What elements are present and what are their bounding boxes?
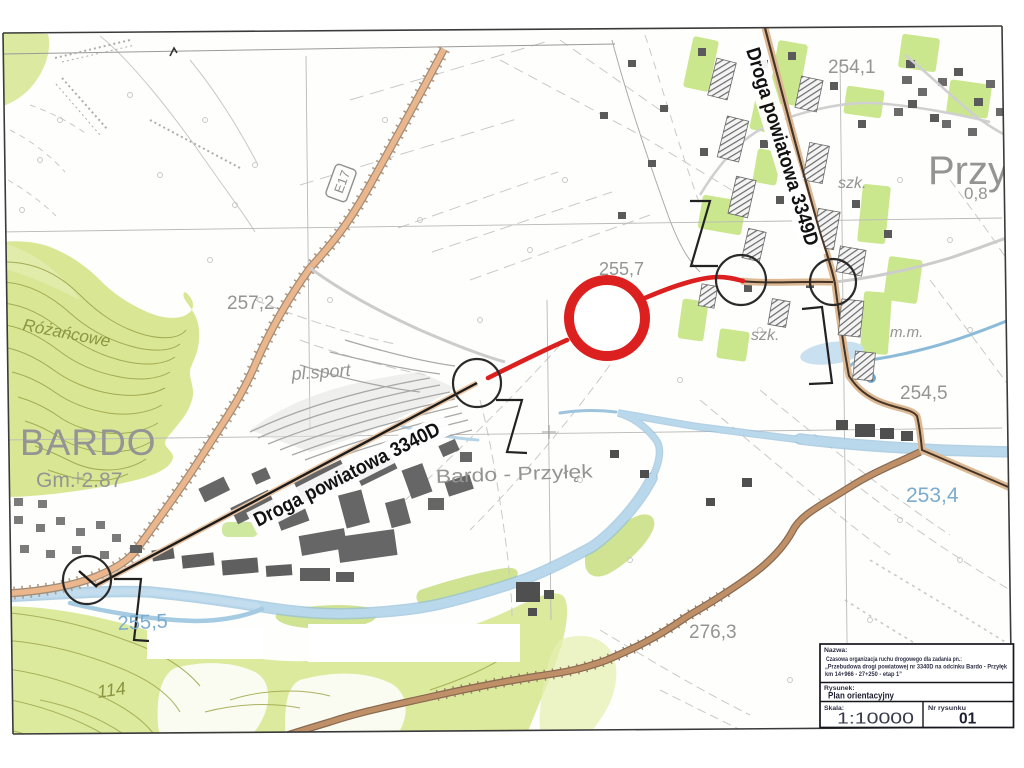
svg-text:0,8: 0,8	[964, 184, 988, 203]
svg-text:254,5: 254,5	[900, 383, 948, 404]
svg-text:szk.: szk.	[751, 327, 779, 344]
svg-text:Plan orientacyjny: Plan orientacyjny	[828, 691, 895, 701]
svg-text:BARDO: BARDO	[20, 422, 157, 463]
svg-text:114: 114	[96, 678, 127, 702]
svg-text:m.m.: m.m.	[890, 324, 923, 341]
svg-text:pl.sport: pl.sport	[290, 360, 352, 384]
svg-text:257,2: 257,2	[227, 293, 275, 314]
svg-text:Czasowa organizacja ruchu drog: Czasowa organizacja ruchu drogowego dla …	[826, 656, 962, 663]
svg-text:276,3: 276,3	[689, 622, 737, 643]
svg-text:254,1: 254,1	[828, 57, 876, 78]
svg-text:Gm. 2.87: Gm. 2.87	[36, 469, 122, 492]
svg-text:Nazwa:: Nazwa:	[824, 647, 847, 654]
svg-text:01: 01	[959, 711, 977, 728]
svg-text:„Przebudowa drogi powiatowej n: „Przebudowa drogi powiatowej nr 3340D na…	[825, 664, 1007, 671]
svg-text:km 14+966 - 27+250 - etap 1”: km 14+966 - 27+250 - etap 1”	[825, 671, 902, 678]
svg-text:255,5: 255,5	[117, 610, 168, 635]
svg-text:1:10000: 1:10000	[837, 711, 915, 728]
svg-text:szk.: szk.	[838, 175, 866, 192]
svg-text:255,7: 255,7	[599, 259, 644, 279]
svg-text:253,4: 253,4	[906, 484, 959, 507]
